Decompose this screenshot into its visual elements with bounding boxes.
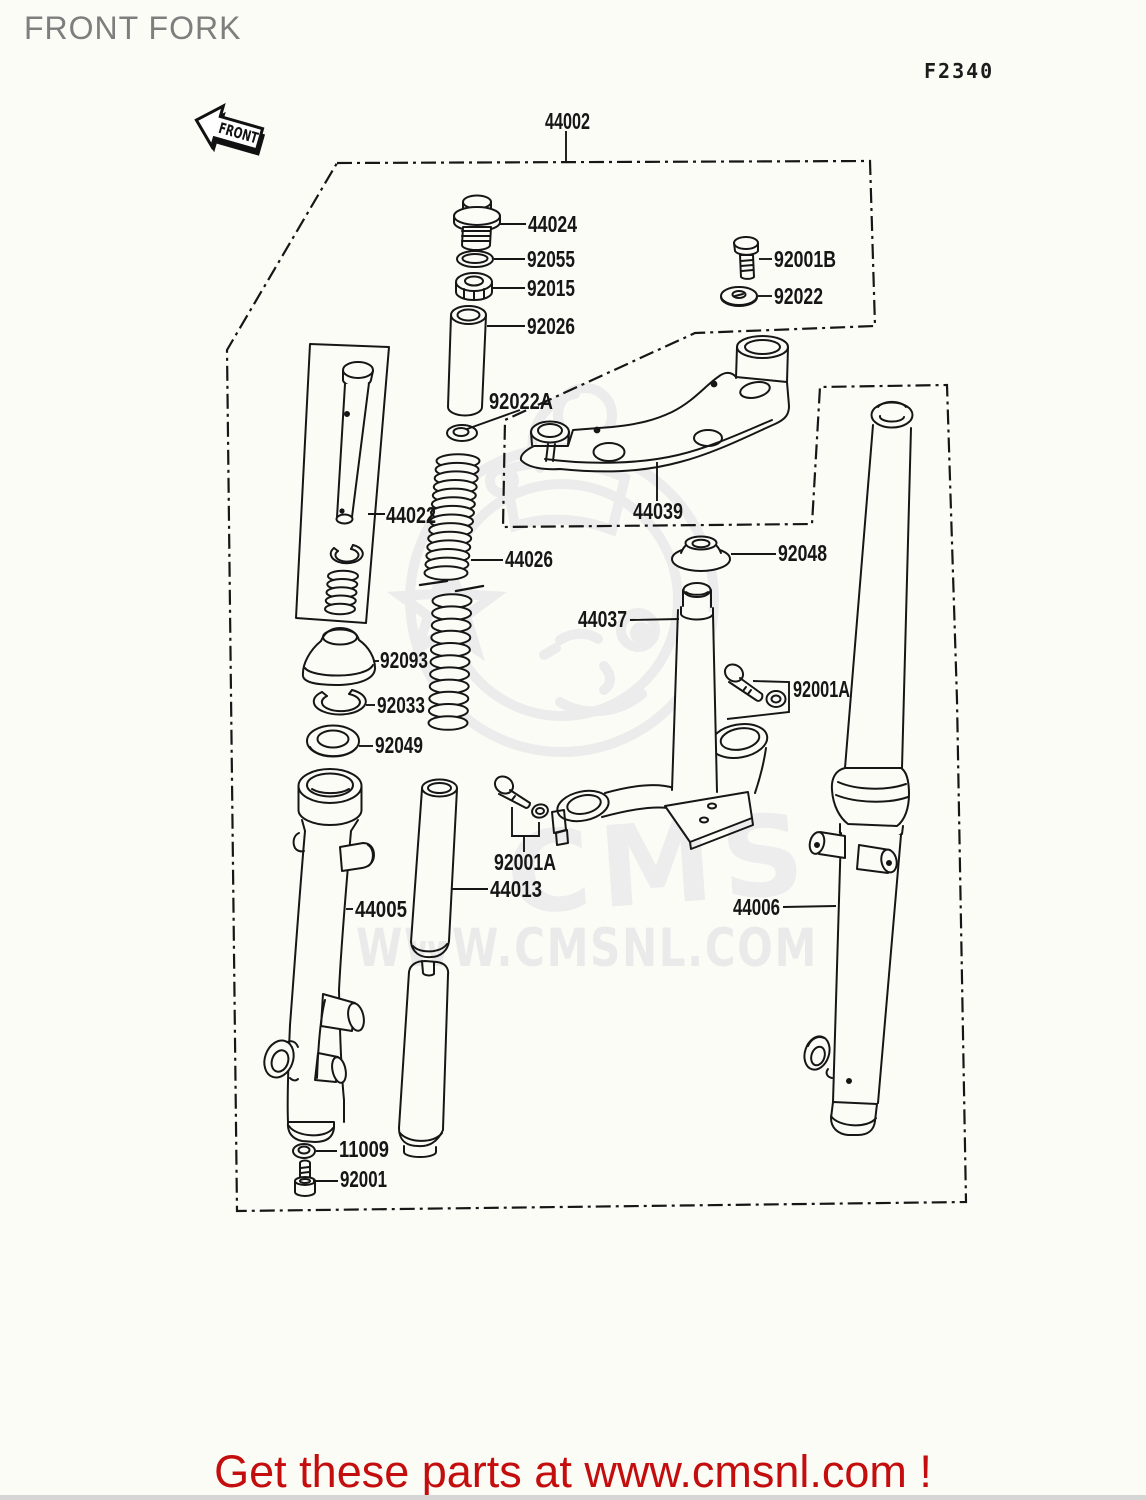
part-label-44024-1: 44024 [528,211,577,237]
part-label-92001-22: 92001 [340,1166,387,1192]
part-label-92001a-13: 92001A [793,676,850,702]
part-label-44026-10: 44026 [505,546,553,572]
watermark-wink-eye-icon [544,634,598,655]
part-label-92049-16: 92049 [375,732,423,758]
parts-diagram: CMS WWW.CMSNL.COM FRONT [0,0,1146,1500]
part-44024-fork-bolt-cap [454,196,500,251]
part-92033-retaining-ring [314,690,366,714]
part-label-92026-4: 92026 [527,313,575,339]
part-label-92015-3: 92015 [527,275,575,301]
part-92049-oil-seal [307,726,359,757]
part-label-44005-19: 44005 [355,896,407,922]
part-92055-o-ring [457,251,493,267]
part-label-44022-8: 44022 [386,502,436,528]
part-label-44002-0: 44002 [545,108,590,134]
part-92001b-bolt [734,237,758,279]
part-92015-washer [456,273,492,300]
part-11009-gasket [293,1144,315,1158]
part-label-92001a-17: 92001A [494,849,556,875]
part-label-44013-18: 44013 [490,876,542,902]
part-92001-drain-bolt [295,1161,315,1197]
part-44022-damper-rod-kit [296,344,389,623]
part-92026-spring-spacer [448,306,486,416]
part-label-92022-6: 92022 [774,283,823,309]
part-label-92001b-5: 92001B [774,246,836,272]
watermark-nose [604,666,610,690]
front-direction-arrow: FRONT [189,100,269,164]
part-92093-dust-seal-boot [303,628,375,685]
footer-promo-text: Get these parts at www.cmsnl.com ! [0,1446,1146,1498]
part-label-44039-9: 44039 [633,498,683,524]
part-label-92093-14: 92093 [380,647,428,673]
part-44006-fork-assembly-right [800,402,912,1135]
part-label-92022a-7: 92022A [489,388,553,414]
part-label-44037-12: 44037 [578,606,627,632]
watermark-pupil [635,627,647,639]
part-label-11009-21: 11009 [339,1136,389,1162]
part-92001a-clamp-bolt-upper [722,661,786,707]
page-bottom-strip [0,1495,1146,1500]
part-label-44006-20: 44006 [733,894,780,920]
part-label-92055-2: 92055 [527,246,575,272]
part-92022-washer [721,287,757,306]
part-92048-steering-cone-washer [672,537,730,572]
part-label-92033-15: 92033 [377,692,425,718]
part-label-92048-11: 92048 [778,540,827,566]
